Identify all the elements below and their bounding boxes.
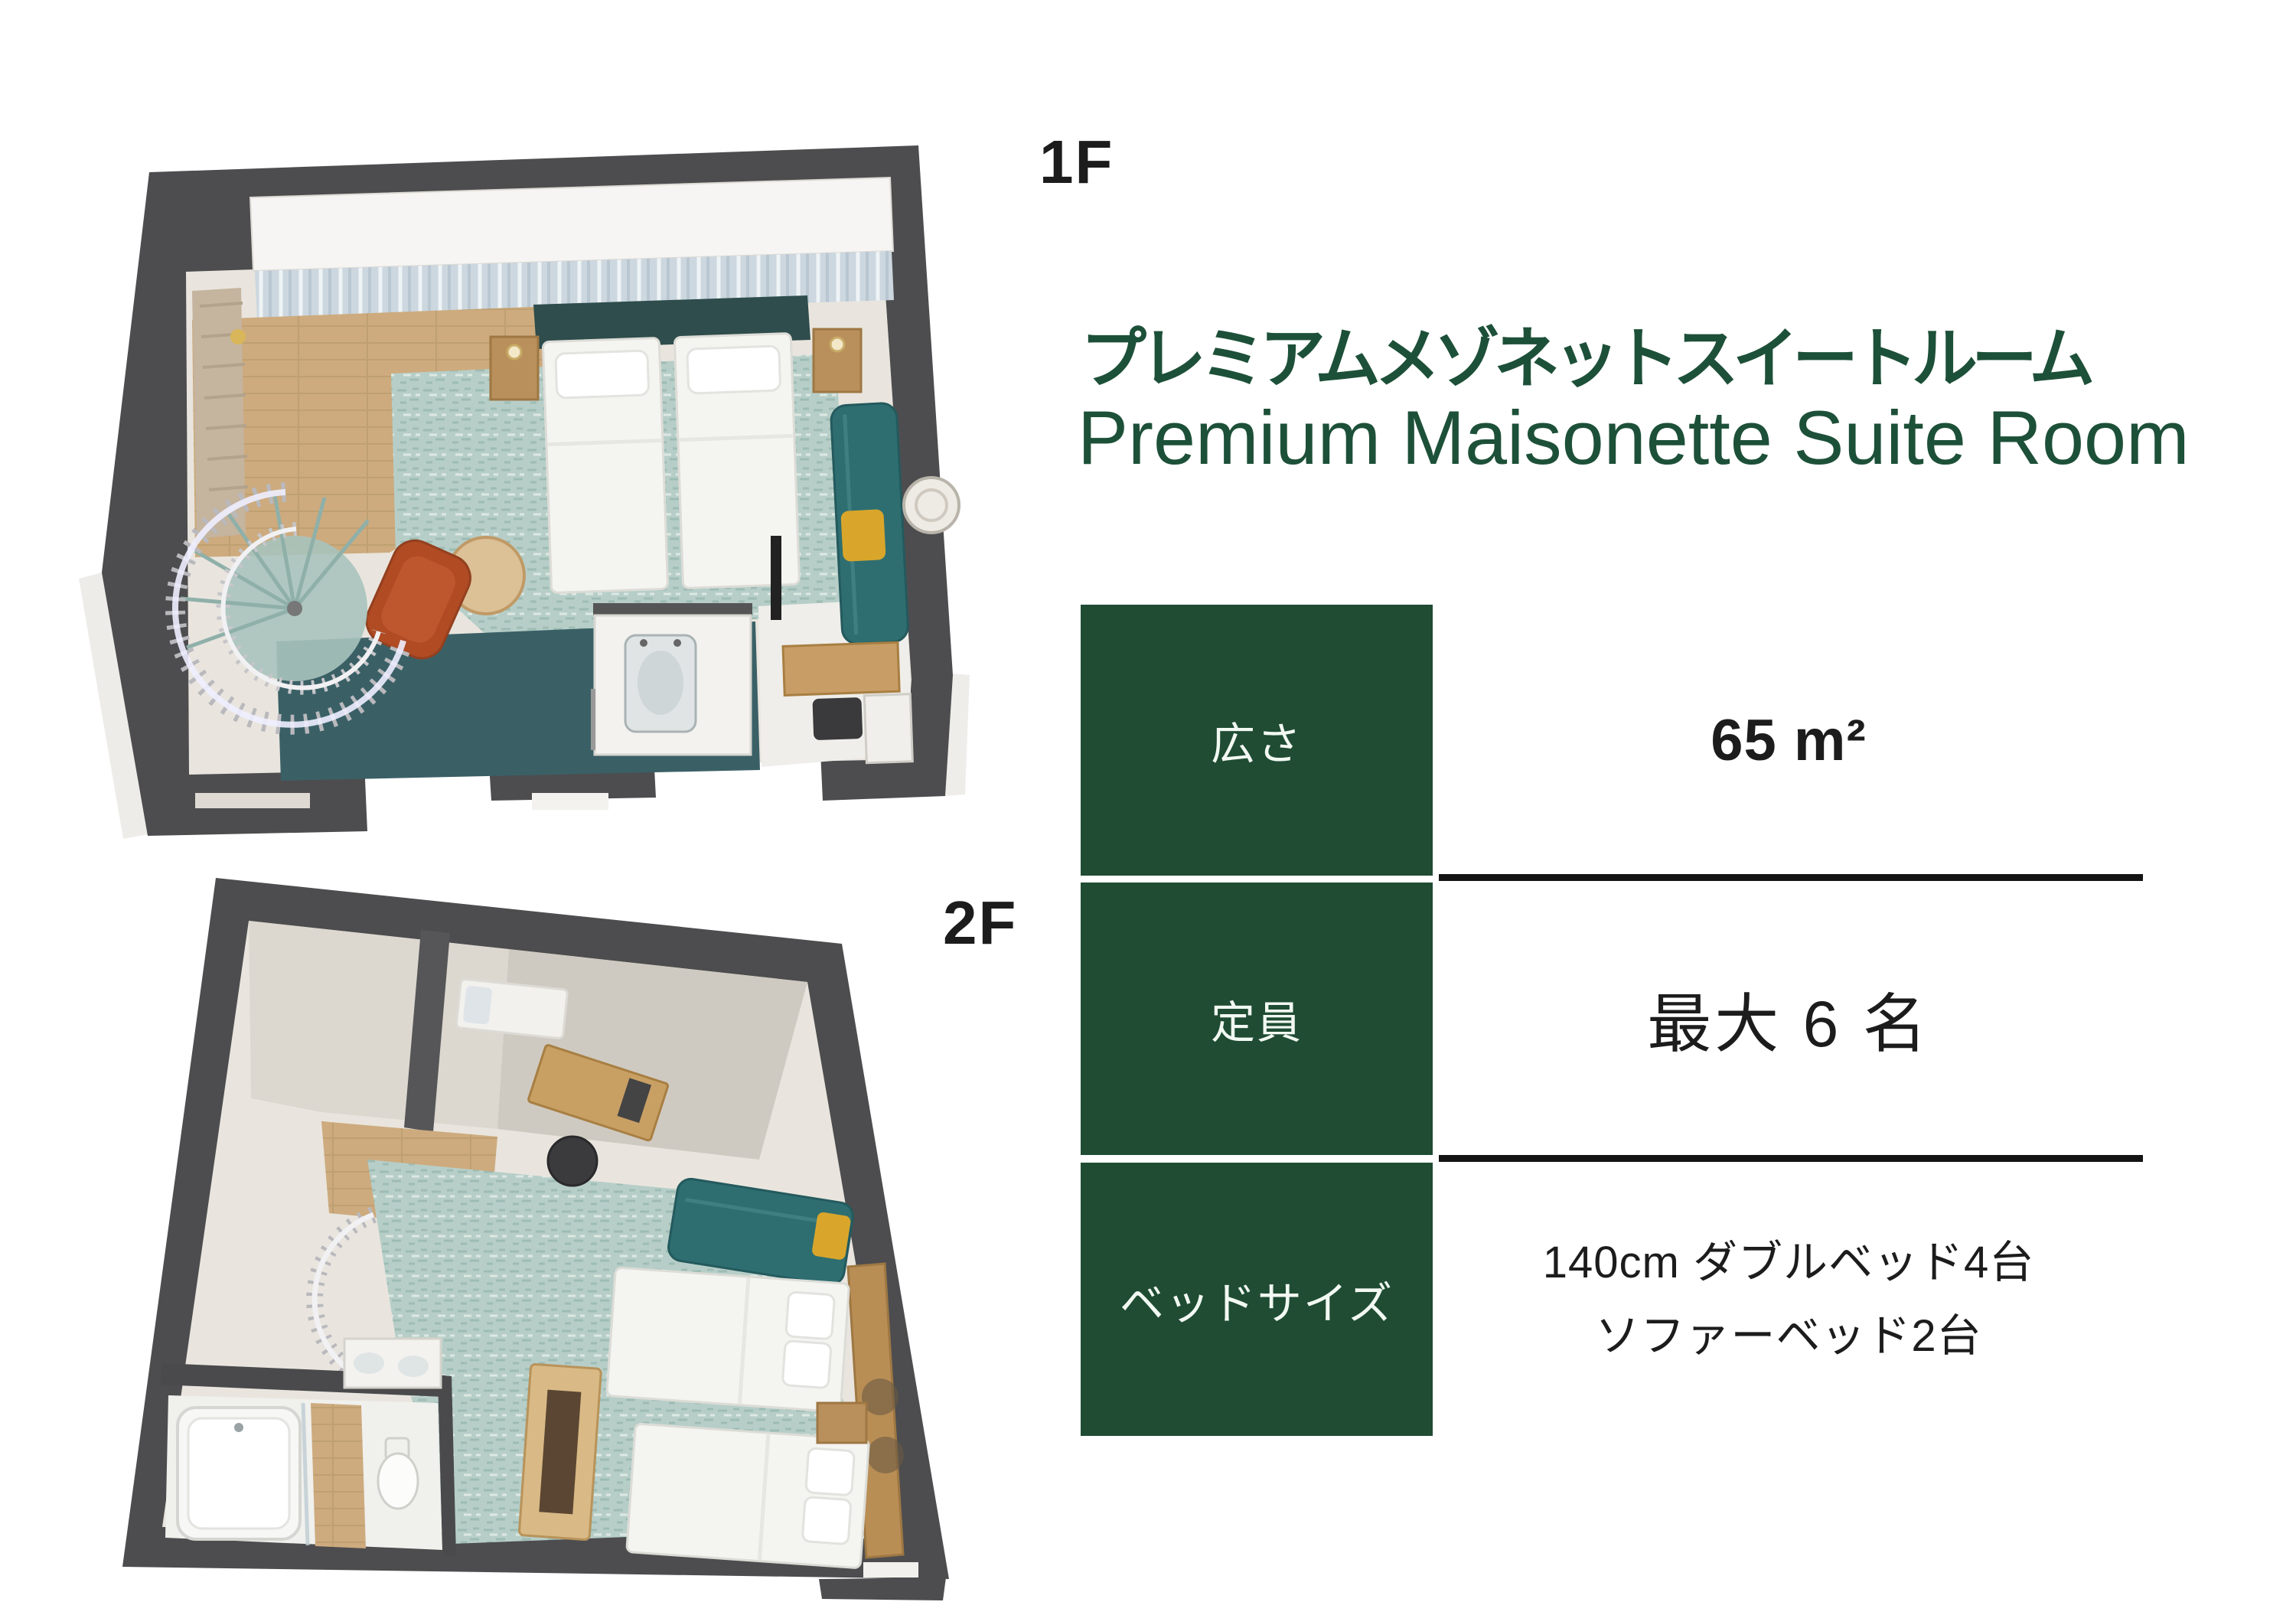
spec-value-beds: 140cm ダブルベッド4台 ソファーベッド2台 [1433, 1163, 2144, 1436]
tv-1f [771, 536, 781, 620]
spec-table: 広さ 65 m² 定員 最大 6 名 ベッドサイズ 140cm ダブルベッド4台… [1081, 605, 2146, 1436]
wall-lamp [230, 329, 246, 344]
spec-value-capacity: 最大 6 名 [1433, 883, 2144, 1155]
bathtub [178, 1408, 300, 1539]
nightstand-left [491, 337, 538, 400]
room-info-page: 1F [0, 0, 2296, 1615]
nightstand-right [814, 329, 861, 392]
closet-door-opening [195, 793, 310, 808]
spec-label-capacity: 定員 [1081, 883, 1433, 1155]
room-title-en: Premium Maisonette Suite Room [1078, 398, 2256, 478]
entry-door-opening [532, 793, 608, 810]
row-divider-1 [1439, 874, 2143, 881]
vanity-1f [593, 603, 752, 755]
sofa-1f [830, 403, 908, 644]
floor-label-1f: 1F [1039, 132, 1114, 193]
spec-label-beds: ベッドサイズ [1081, 1163, 1433, 1436]
nightstand-2f [817, 1403, 866, 1443]
floor-plan-2f [92, 869, 972, 1604]
floor-plan-1f [57, 107, 1006, 842]
spec-value-line: ソファーベッド2台 [1595, 1300, 1981, 1373]
closet-alcove [456, 979, 568, 1039]
spec-row-beds: ベッドサイズ 140cm ダブルベッド4台 ソファーベッド2台 [1081, 1163, 2146, 1436]
headboard-art-2 [867, 1437, 904, 1473]
wall-art [904, 478, 959, 533]
spec-row-size: 広さ 65 m² [1081, 605, 2146, 876]
spec-value-size: 65 m² [1433, 605, 2144, 876]
floor-label-2f: 2F [943, 892, 1017, 954]
room-title-ja: プレミアムメゾネットスイートルーム [1081, 325, 2244, 393]
bed-double-lower [627, 1424, 869, 1568]
bath-wood-strip [311, 1403, 366, 1548]
entry-stub-2f [819, 1577, 946, 1600]
bed-double-upper [607, 1268, 850, 1412]
spec-label-size: 広さ [1081, 605, 1433, 876]
bed-twin-left [543, 338, 667, 592]
floor-plan-2f-render [92, 869, 972, 1604]
row-divider-2 [1439, 1155, 2143, 1162]
tv-board-2f [519, 1364, 601, 1540]
spec-value-line: 140cm ダブルベッド4台 [1543, 1226, 2034, 1300]
entry-opening-2f [863, 1562, 918, 1577]
spec-row-capacity: 定員 最大 6 名 [1081, 883, 2146, 1155]
floor-plan-1f-render [57, 107, 1006, 842]
spec-value-line: 65 m² [1711, 707, 1867, 774]
spec-value-line: 最大 6 名 [1647, 973, 1929, 1065]
bathroom-vanity [344, 1339, 441, 1388]
wood-slat-wall [192, 288, 246, 539]
desk-chair-2f [548, 1137, 597, 1186]
